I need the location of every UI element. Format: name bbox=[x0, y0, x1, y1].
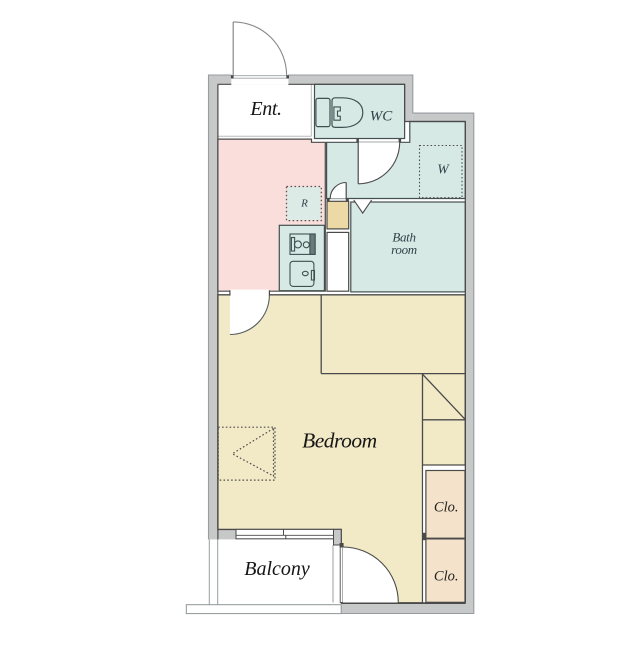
svg-text:W: W bbox=[437, 162, 450, 177]
svg-text:room: room bbox=[391, 242, 417, 257]
svg-text:Clo.: Clo. bbox=[434, 568, 459, 584]
svg-text:WC: WC bbox=[370, 109, 393, 125]
svg-text:Bedroom: Bedroom bbox=[302, 429, 377, 453]
svg-text:R: R bbox=[300, 198, 308, 210]
svg-text:Clo.: Clo. bbox=[434, 499, 459, 515]
svg-text:Balcony: Balcony bbox=[244, 558, 310, 580]
svg-text:Ent.: Ent. bbox=[249, 98, 281, 120]
